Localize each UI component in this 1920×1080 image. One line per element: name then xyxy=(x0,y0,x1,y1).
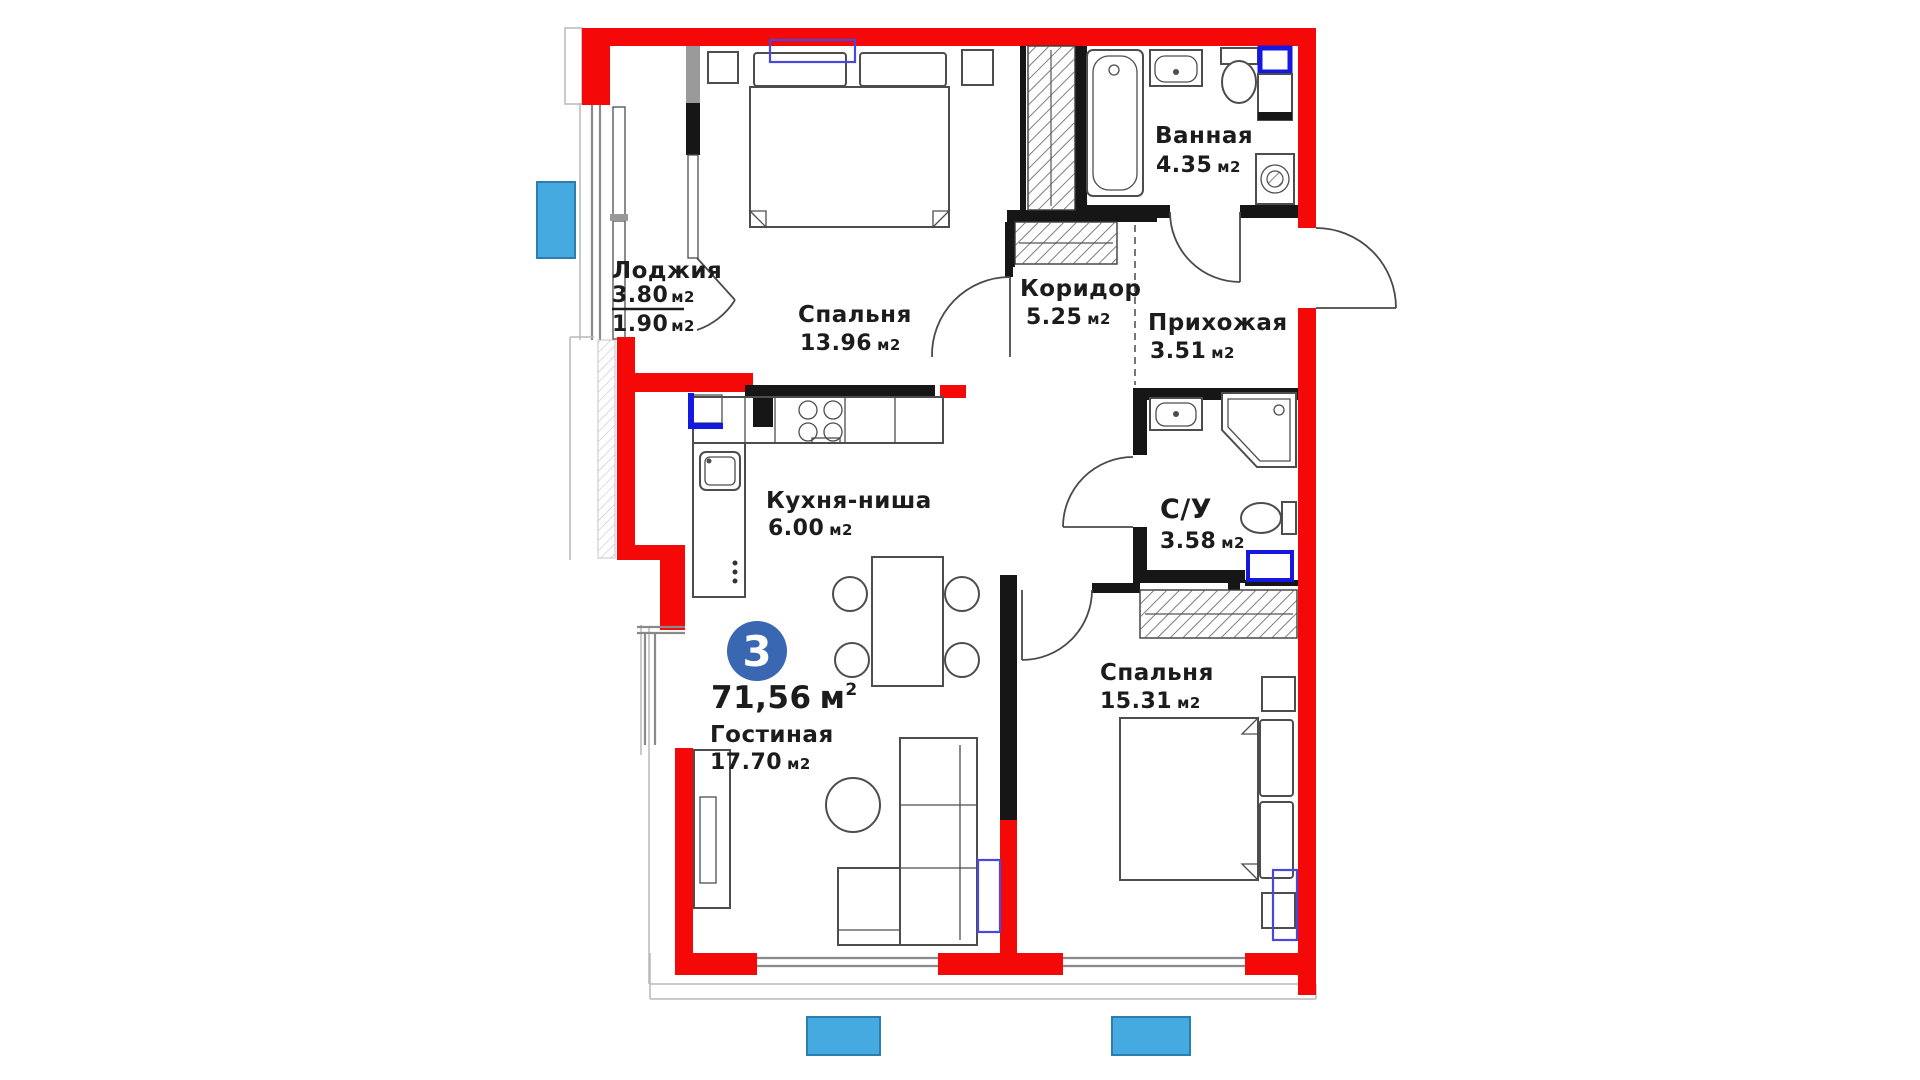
wall-wc-left-upper xyxy=(1133,400,1147,455)
window xyxy=(757,958,938,966)
wall-right-upper xyxy=(1298,28,1316,228)
wall-corridor-left xyxy=(1005,222,1013,277)
dining-table-icon xyxy=(872,557,943,686)
room-name: Спальня xyxy=(1100,660,1214,686)
wall-bottom-1 xyxy=(675,953,757,975)
wall-bedroom2-top-stub xyxy=(1092,583,1140,593)
wall-jog-vertical xyxy=(660,545,685,630)
wall-living-bedroom2-lower xyxy=(1000,820,1017,953)
bathtub-icon xyxy=(1087,50,1143,196)
cabinet-base xyxy=(1258,112,1292,120)
wall-loggia-bedroom-upper xyxy=(686,46,700,103)
wall-bathroom-bottom-right xyxy=(1240,205,1298,218)
room-name: Спальня xyxy=(798,302,912,328)
sink-icon xyxy=(1150,50,1202,86)
wall-living-bedroom2-upper xyxy=(1000,575,1017,820)
loggia-door-window xyxy=(688,155,698,258)
window xyxy=(637,627,685,745)
wardrobe-icon xyxy=(1140,590,1297,638)
window xyxy=(1063,958,1245,966)
drawer-dots xyxy=(733,570,738,575)
toilet-icon xyxy=(1221,48,1258,103)
marker-cyan-bottom1 xyxy=(807,1017,880,1055)
pillow-icon xyxy=(860,53,946,86)
wall-loggia-bedroom xyxy=(686,103,700,155)
unit-badge: 3 xyxy=(727,621,787,681)
wall-bottom-2 xyxy=(938,953,1063,975)
pillow-icon xyxy=(1260,802,1293,878)
floor-plan: Лоджия 3.80м2 1.90м2 Спальня 13.96м2 Ван… xyxy=(0,0,1920,1080)
wall-kitchen-left xyxy=(617,337,635,560)
glass-divider xyxy=(610,214,628,221)
toilet-icon xyxy=(1241,502,1296,534)
wall-wc-left-lower xyxy=(1133,527,1147,570)
room-name: Лоджия xyxy=(612,258,722,284)
door-entrance xyxy=(1316,228,1396,308)
total-area: 71,56м2 xyxy=(711,680,858,716)
pillow-icon xyxy=(1260,720,1293,796)
room-name: Кухня-ниша xyxy=(766,488,932,514)
pillow-icon xyxy=(754,53,846,86)
wall-bottom-3 xyxy=(1245,953,1316,975)
wall-top xyxy=(582,28,1316,46)
kitchen-sink-icon xyxy=(700,452,740,490)
wall-loggia-corner xyxy=(617,373,753,392)
nightstand-icon xyxy=(962,50,993,85)
marker-cyan-left xyxy=(537,182,575,258)
wall-living-left xyxy=(675,748,693,953)
bed-icon xyxy=(750,87,949,227)
room-name: Ванная xyxy=(1155,123,1253,149)
drawer-dots xyxy=(733,561,738,566)
wall-insulation xyxy=(598,340,615,558)
wall-facing xyxy=(565,28,582,104)
wall-left-stub xyxy=(582,28,610,105)
drawer-dots xyxy=(733,579,738,584)
badge-room-count: 3 xyxy=(742,627,771,676)
marker-cyan-bottom2 xyxy=(1112,1017,1190,1055)
nightstand-icon xyxy=(1262,677,1295,711)
nightstand-icon xyxy=(1262,893,1295,928)
sink-icon xyxy=(1150,398,1202,430)
wardrobe-icon xyxy=(1028,46,1075,210)
room-name: Коридор xyxy=(1020,276,1142,302)
bed-icon xyxy=(1120,718,1258,880)
washing-machine-icon xyxy=(1256,154,1294,204)
wall-closet1-left xyxy=(1020,46,1026,210)
nightstand-icon xyxy=(708,52,738,83)
room-name: Гостиная xyxy=(710,722,834,748)
door-wc xyxy=(1063,457,1133,527)
room-name: С/У xyxy=(1160,494,1212,525)
wardrobe-icon xyxy=(1015,222,1117,264)
wall-right-lower xyxy=(1298,308,1316,995)
wall-bathroom-bottom-left xyxy=(1087,205,1170,218)
room-name: Прихожая xyxy=(1148,310,1288,336)
wall-kitchen-stub xyxy=(753,387,773,427)
wall-closet1-bathroom xyxy=(1075,46,1087,210)
